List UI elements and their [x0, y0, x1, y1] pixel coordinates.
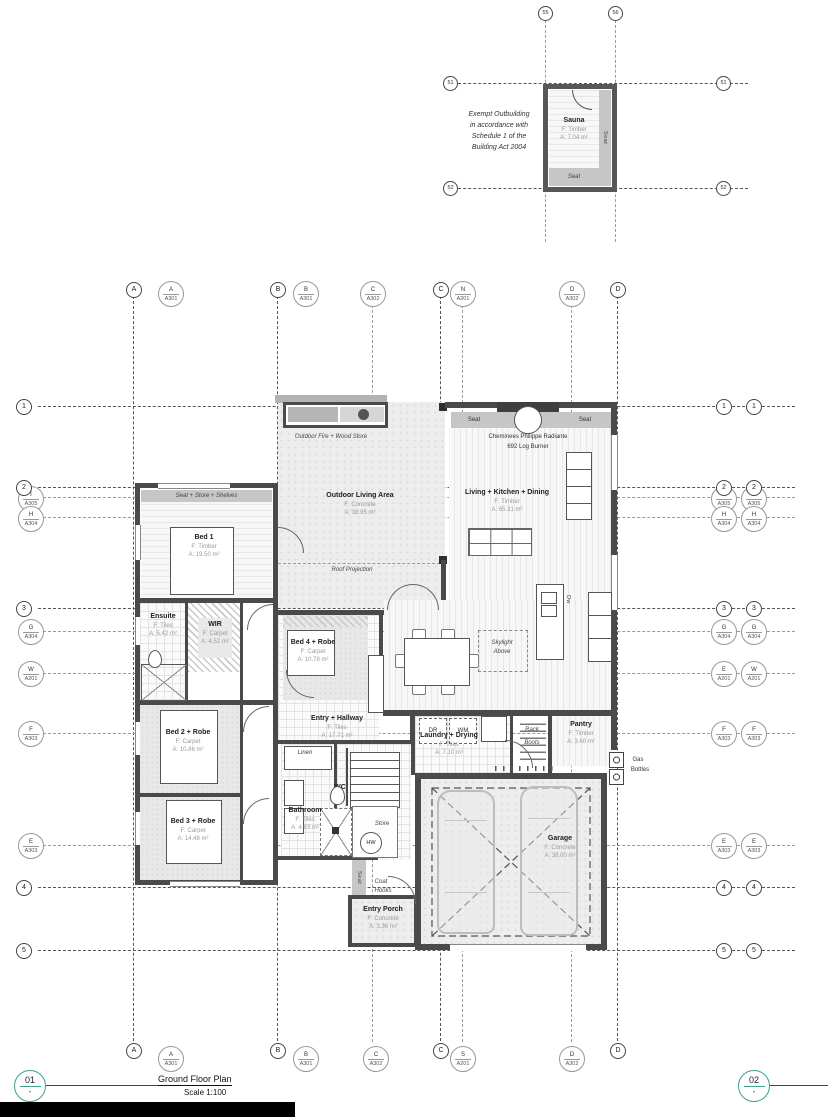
grid-bubble-row-1-left: 1 — [16, 399, 32, 415]
wall — [346, 748, 348, 806]
section-marker-e-a303-left: EA303 — [18, 833, 44, 859]
grid-bubble-row-5-left: 5 — [16, 943, 32, 959]
sauna-seat-right-label: Seat — [602, 131, 608, 144]
entry-door-arc — [388, 876, 416, 904]
bed4-robe — [283, 616, 368, 627]
grid-bubble-col-d-top: D — [610, 282, 626, 298]
linen-label: Linen — [298, 749, 313, 757]
vanity-icon — [284, 780, 304, 806]
section-marker-c-a302-top: CA302 — [360, 281, 386, 307]
outdoor-fireplace-firebox — [288, 407, 338, 422]
grid-bubble-col-c-top: C — [433, 282, 449, 298]
grid-bubble-sauna-row1-right: 51 — [716, 76, 731, 91]
sink-icon — [541, 592, 557, 604]
grid-line-col-d — [617, 296, 618, 1046]
log-burner-hearth — [514, 406, 542, 434]
window — [170, 881, 240, 887]
title-rule — [46, 1085, 158, 1086]
grid-bubble-sauna-row2-left: 52 — [443, 181, 458, 196]
exempt-outbuilding-note: Exempt Outbuilding in accordance with Sc… — [458, 110, 540, 153]
grid-bubble-row-2-right-outer: 2 — [746, 480, 762, 496]
ski-hooks-label: Ski Hooks — [510, 774, 537, 782]
grid-bubble-sauna-row2-right: 52 — [716, 181, 731, 196]
room-label-pantry: Pantry F: Timber A: 3.60 m² — [567, 720, 595, 747]
hot-water-cylinder-icon: HW — [360, 832, 382, 854]
grid-bubble-row-2-left: 2 — [16, 480, 32, 496]
grid-bubble-col-d-bottom: D — [610, 1043, 626, 1059]
roof-projection-label: Roof Projection — [331, 566, 372, 574]
bottles-label: Bottles — [631, 766, 649, 774]
room-label-wir: WIR F: Carpet A: 4.52 m² — [201, 620, 229, 647]
stairs — [350, 752, 400, 808]
grid-bubble-row-3-left: 3 — [16, 601, 32, 617]
grid-bubble-row-5-right-inner: 5 — [716, 943, 732, 959]
bed1-seat-store-shelves: Seat + Store + Shelves — [141, 490, 272, 502]
grid-bubble-row-3-right-inner: 3 — [716, 601, 732, 617]
log-burner-label: 692 Log Burner — [507, 443, 548, 451]
grid-bubble-col-b-top: B — [270, 282, 286, 298]
section-marker-s-a201-bottom: SA201 — [450, 1046, 476, 1072]
seat-label-right: Seat — [579, 416, 591, 424]
laundry-tub-icon — [481, 716, 507, 742]
room-label-ensuite: Ensuite F: Tiles A: 5.42 m² — [149, 612, 177, 639]
entry-seat: Seat — [352, 860, 366, 895]
toilet-icon — [330, 786, 345, 805]
roof-projection-line — [278, 563, 445, 564]
grid-line-col-a — [133, 296, 134, 1046]
window — [158, 483, 230, 489]
grid-bubble-row-4-right-outer: 4 — [746, 880, 762, 896]
dining-table-icon — [404, 638, 470, 686]
grid-bubble-row-2-right-inner: 2 — [716, 480, 732, 496]
store-label: Store — [375, 820, 389, 828]
section-marker-h-a304-right-inner: HA304 — [711, 506, 737, 532]
drawing-number-01: 01 - — [14, 1070, 46, 1102]
cabinet-icon — [566, 452, 592, 520]
section-marker-f-a303-right-outer: FA303 — [741, 721, 767, 747]
room-label-entry-hallway: Entry + Hallway F: Tiles A: 17.71 m² — [311, 714, 363, 741]
entry-seat-label: Seat — [356, 871, 362, 884]
grid-bubble-col-a-top: A — [126, 282, 142, 298]
gas-bottle-icon — [609, 752, 624, 768]
room-label-bathroom: Bathroom F: Tiles A: 4.83 m² — [288, 806, 321, 833]
section-marker-h-a304-left: HA304 — [18, 506, 44, 532]
window — [611, 435, 618, 490]
wall — [240, 603, 243, 880]
room-label-porch: Entry Porch F: Concrete A: 3.36 m² — [363, 905, 403, 932]
room-label-bed2: Bed 2 + Robe F: Carpet A: 10.86 m² — [166, 728, 211, 755]
section-marker-g-a304-right-inner: GA304 — [711, 619, 737, 645]
section-marker-e-a303-right-outer: EA303 — [741, 833, 767, 859]
garage-door-opening — [450, 944, 586, 951]
boots-label: Boots — [524, 739, 539, 747]
seat-store-shelves-label: Seat + Store + Shelves — [176, 493, 238, 499]
grid-bubble-row-5-right-outer: 5 — [746, 943, 762, 959]
grid-bubble-row-4-right-inner: 4 — [716, 880, 732, 896]
grid-bubble-row-1-right-outer: 1 — [746, 399, 762, 415]
room-label-sauna: Sauna F: Timber A: 7.04 m² — [560, 116, 588, 143]
grid-line-row-5 — [38, 950, 795, 951]
drawing-number-02: 02 - — [738, 1070, 770, 1102]
sheet-scale: Scale 1:100 — [184, 1088, 226, 1097]
oven-stack-icon — [588, 592, 612, 662]
window — [611, 555, 618, 610]
sauna-seat-bottom-label: Seat — [568, 173, 580, 181]
sheet-title: Ground Floor Plan — [158, 1074, 232, 1086]
room-label-laundry: Laundry + Drying F: Tiles A: 7.10 m² — [420, 731, 478, 758]
sauna-seat-right: Seat — [599, 90, 611, 186]
car-icon — [520, 786, 578, 936]
skylight-label-2: Above — [493, 648, 510, 656]
section-marker-g-a304-left: GA304 — [18, 619, 44, 645]
title-rule — [770, 1085, 828, 1086]
ski-hooks-icon — [495, 766, 559, 771]
room-label-bed4: Bed 4 + Robe F: Carpet A: 10.78 m² — [291, 638, 336, 665]
seat-label-left: Seat — [468, 416, 480, 424]
grid-bubble-row-1-right-inner: 1 — [716, 399, 732, 415]
section-marker-e-a201-right-inner: EA201 — [711, 661, 737, 687]
section-marker-d-a302-top: DA302 — [559, 281, 585, 307]
outdoor-fire-label: Outdoor Fire + Wood Store — [295, 433, 367, 441]
grid-bubble-sauna-col2: 56 — [608, 6, 623, 21]
room-label-bed3: Bed 3 + Robe F: Carpet A: 14.48 m² — [171, 817, 216, 844]
cheminees-label: Cheminees Philippe Radiante — [488, 433, 567, 441]
section-marker-w-a201-left: WA201 — [18, 661, 44, 687]
room-label-bed1: Bed 1 F: Timber A: 19.50 m² — [188, 533, 219, 560]
grid-bubble-row-3-right-outer: 3 — [746, 601, 762, 617]
sink-icon — [541, 605, 557, 617]
section-marker-w-a201-right-outer: WA201 — [741, 661, 767, 687]
shower-head-icon — [332, 827, 339, 834]
grid-bubble-col-c-bottom: C — [433, 1043, 449, 1059]
grid-bubble-sauna-col1: 55 — [538, 6, 553, 21]
section-marker-f-a303-left: FA303 — [18, 721, 44, 747]
skylight-label-1: Skylight — [491, 639, 512, 647]
section-marker-a-a301-bottom: AA301 — [158, 1046, 184, 1072]
section-marker-a-a301-top: AA301 — [158, 281, 184, 307]
shelving-unit — [368, 655, 384, 713]
room-label-living: Living + Kitchen + Dining F: Timber A: 6… — [465, 488, 549, 515]
section-marker-n-a201-top: NA201 — [450, 281, 476, 307]
room-label-outdoor: Outdoor Living Area F: Concrete A: 38.95… — [326, 491, 393, 518]
section-marker-f-a303-right-inner: FA303 — [711, 721, 737, 747]
flue-icon — [358, 409, 369, 420]
dishwasher-label: Dw — [565, 595, 571, 604]
shower-icon — [141, 664, 187, 701]
title-bar — [0, 1102, 295, 1117]
grid-bubble-sauna-row1-left: 51 — [443, 76, 458, 91]
section-marker-d-a302-bottom: DA302 — [559, 1046, 585, 1072]
section-marker-b-a301-bottom: BA301 — [293, 1046, 319, 1072]
rack-label: Rack — [525, 726, 539, 734]
furniture-grid-icon — [468, 528, 532, 556]
grid-bubble-row-4-left: 4 — [16, 880, 32, 896]
wall — [611, 714, 617, 750]
gas-bottle-icon — [609, 769, 624, 785]
section-marker-h-a304-right-outer: HA304 — [741, 506, 767, 532]
grid-bubble-col-b-bottom: B — [270, 1043, 286, 1059]
floor-plan-sheet: 55 56 51 52 51 52 Exempt Outbuilding in … — [0, 0, 828, 1117]
gas-label: Gas — [632, 756, 643, 764]
section-marker-b-a301-top: BA301 — [293, 281, 319, 307]
coat-hooks-label-1: Coat — [375, 878, 388, 886]
toilet-icon — [148, 650, 162, 668]
room-label-garage: Garage F: Concrete A: 38.00 m² — [544, 834, 575, 861]
section-marker-c-a302-bottom: CA302 — [363, 1046, 389, 1072]
section-marker-e-a303-right-inner: EA303 — [711, 833, 737, 859]
section-marker-g-a304-right-outer: GA304 — [741, 619, 767, 645]
grid-bubble-col-a-bottom: A — [126, 1043, 142, 1059]
car-icon — [437, 790, 495, 934]
